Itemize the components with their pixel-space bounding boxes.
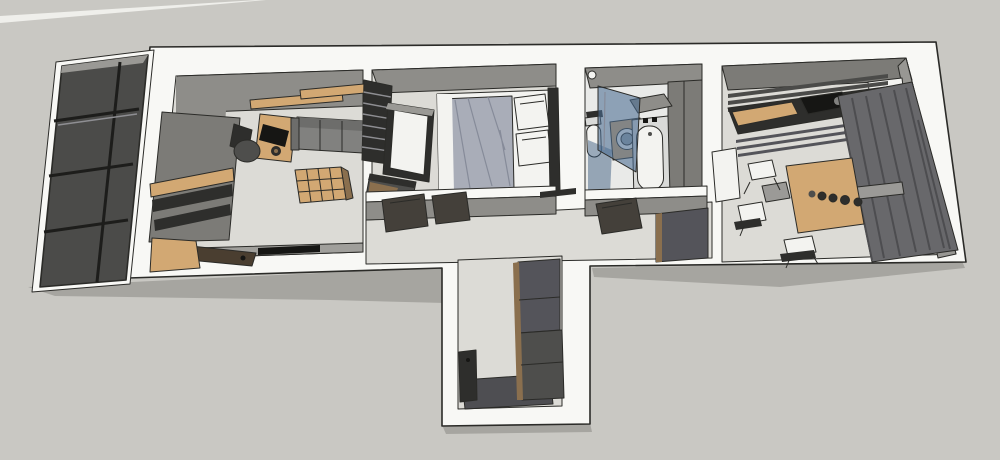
shoe-cabinet	[656, 208, 708, 262]
floorplan-canvas	[0, 0, 1000, 460]
bedroom	[362, 64, 560, 202]
ceiling-light	[588, 71, 596, 79]
stool-gray	[762, 182, 790, 202]
pillow-2	[516, 130, 551, 166]
bath-faucet-2	[652, 117, 657, 122]
hallway	[366, 186, 712, 264]
headboard	[548, 88, 560, 191]
bottle-4	[854, 198, 862, 206]
coat-rack	[459, 350, 477, 402]
office-chair-seat	[234, 140, 260, 162]
bottle-1	[818, 192, 826, 200]
bottle-2	[829, 194, 837, 202]
bench-knob	[241, 256, 246, 261]
chair-1	[748, 160, 776, 180]
3d-viewport[interactable]	[0, 0, 1000, 460]
white-door-leaf	[712, 148, 740, 202]
bathroom	[585, 64, 702, 201]
bath-faucet-1	[643, 118, 648, 123]
bottle-5	[809, 191, 816, 198]
open-door-bedroom	[432, 192, 470, 224]
desk-cup-inner	[274, 149, 278, 153]
bed-sheet-edge	[437, 94, 454, 194]
shoe-cabinet-edge	[656, 213, 662, 262]
sofa-armrest	[291, 118, 299, 150]
bottle-3	[841, 196, 850, 205]
open-door-bathroom	[596, 198, 642, 234]
living-room	[149, 70, 365, 272]
coat-hook	[466, 358, 470, 362]
wardrobe-door	[390, 110, 428, 175]
bench	[150, 238, 200, 272]
tall-cabinet-upper	[518, 259, 560, 333]
pillow-1	[514, 94, 549, 130]
bathroom-right-wall	[668, 80, 702, 198]
bath-drain	[648, 132, 652, 136]
entry-vestibule	[458, 256, 564, 409]
open-door-living	[382, 194, 428, 232]
